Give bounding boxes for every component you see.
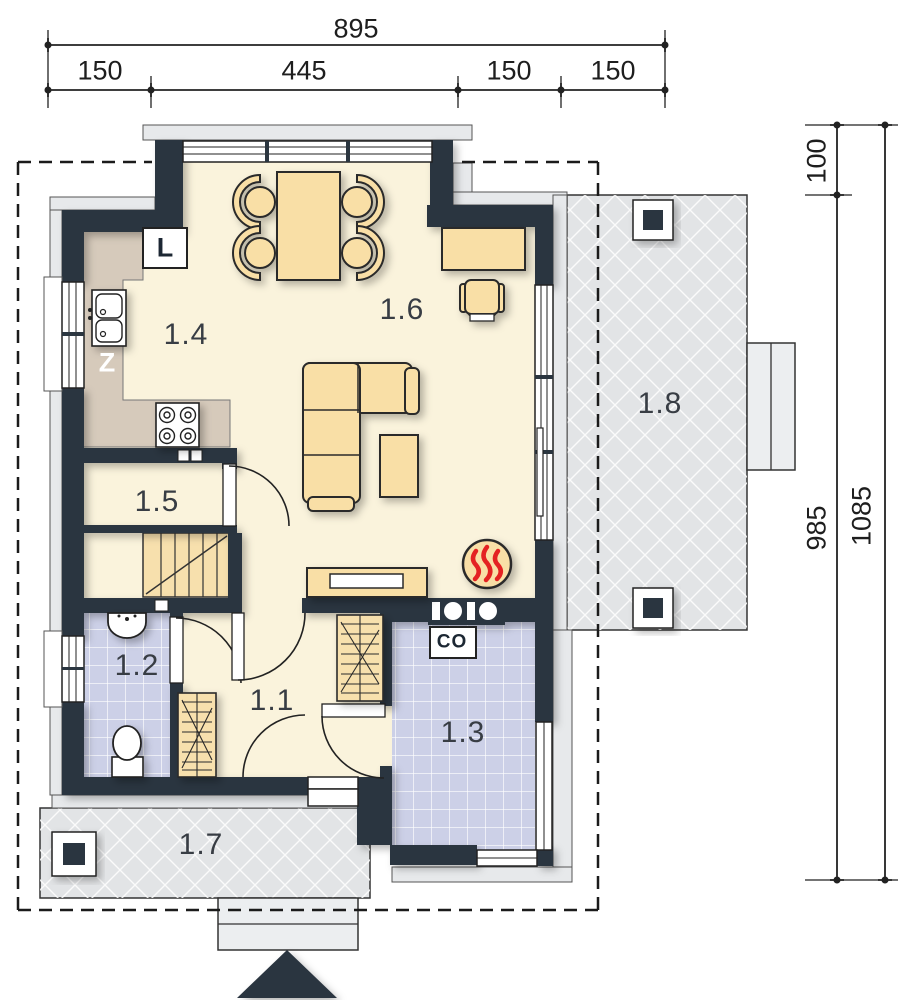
terrace-post-bottom (633, 588, 673, 628)
sofa-armrest (308, 497, 354, 511)
entrance-arrow (237, 950, 337, 998)
terrace-slider-window (535, 285, 553, 540)
desk (442, 228, 525, 270)
hall-door-leaf (232, 613, 244, 680)
dim-top-seg-4: 150 (590, 58, 635, 85)
room-label-living: 1.6 (380, 295, 425, 325)
room-label-kitchen: 1.4 (164, 320, 209, 350)
chair-seat (245, 187, 275, 217)
fireplace (463, 540, 511, 588)
dining-set (233, 172, 384, 280)
chair-seat (342, 238, 372, 268)
dining-table (277, 172, 340, 280)
fridge-label: L (157, 235, 174, 262)
entrance-door (308, 777, 358, 806)
bathroom-sink (108, 613, 146, 638)
desk-chair (465, 280, 499, 314)
room-label-utility: 1.3 (441, 718, 486, 748)
sofa-armrest (405, 368, 419, 414)
sink-unit-label: Z (99, 350, 116, 377)
dim-right-inner: 985 (804, 505, 831, 550)
room-label-bathroom: 1.2 (115, 651, 160, 681)
coffee-table (380, 435, 418, 497)
utility-door-leaf (322, 704, 385, 717)
wardrobe-utility (337, 615, 383, 701)
tv-cabinet (307, 568, 427, 597)
kitchen-sink (88, 290, 126, 346)
kitchen-window (44, 277, 84, 391)
chair-seat (342, 187, 372, 217)
dim-top-seg-2: 445 (281, 58, 326, 85)
porch-column (52, 832, 96, 876)
dim-top-seg-1: 150 (77, 58, 122, 85)
living-top-window (183, 141, 432, 162)
dim-top-seg-3: 150 (486, 58, 531, 85)
dim-right-total: 1085 (849, 486, 876, 546)
slider-leaf (537, 428, 543, 516)
room-label-hall: 1.1 (250, 686, 295, 716)
stove (156, 403, 199, 447)
terrace-post-top (633, 200, 673, 240)
central-heating-label: CO (437, 633, 468, 652)
room-label-terrace: 1.8 (638, 389, 683, 419)
chair-seat (245, 238, 275, 268)
pantry-door-leaf (223, 464, 236, 526)
room-label-pantry: 1.5 (135, 487, 180, 517)
tv (330, 574, 403, 588)
room-label-porch: 1.7 (179, 830, 224, 860)
toilet (112, 726, 143, 777)
bathroom-door-leaf (170, 617, 183, 683)
bathroom-window (44, 631, 84, 707)
stairs (143, 533, 230, 597)
dim-right-offset: 100 (804, 138, 831, 183)
dim-top-total: 895 (333, 16, 378, 43)
wardrobe-hall (178, 693, 216, 777)
floorplan-canvas: 895 150 445 150 150 100 985 1085 1.1 1.2… (0, 0, 902, 1000)
